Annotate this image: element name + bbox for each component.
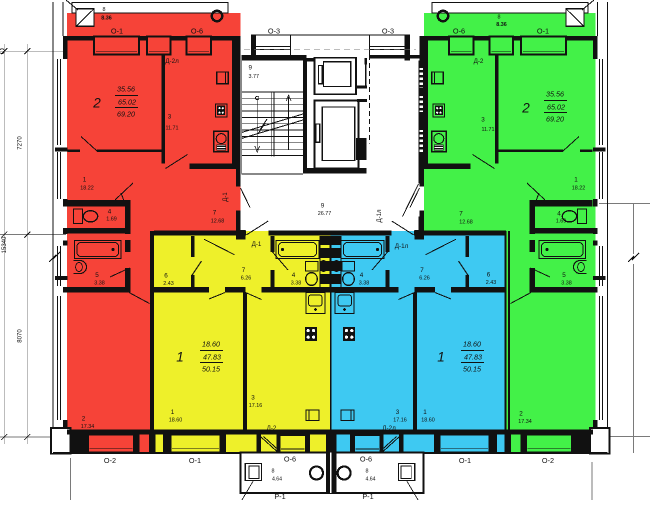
svg-text:3: 3 [481,117,485,124]
svg-text:6.26: 6.26 [241,276,252,282]
svg-text:4: 4 [108,209,112,216]
svg-text:11.71: 11.71 [481,127,494,133]
svg-text:О-6: О-6 [453,27,465,36]
svg-text:Д-1л: Д-1л [395,243,409,250]
svg-text:18.60: 18.60 [169,418,183,424]
svg-text:17.34: 17.34 [81,424,95,430]
svg-text:2.43: 2.43 [486,280,497,286]
svg-text:9: 9 [249,65,253,72]
svg-text:69.20: 69.20 [117,110,135,119]
svg-text:3.38: 3.38 [359,281,370,287]
svg-text:8: 8 [103,7,106,13]
svg-text:11.71: 11.71 [165,126,178,132]
svg-text:8070: 8070 [18,329,24,343]
svg-text:О-1: О-1 [459,456,471,465]
svg-text:4: 4 [557,211,561,218]
svg-text:9: 9 [321,203,325,210]
svg-text:18.60: 18.60 [421,418,435,424]
svg-text:12.68: 12.68 [211,219,225,225]
svg-text:1.69: 1.69 [556,219,567,225]
svg-text:7270: 7270 [18,136,24,150]
svg-text:О-2: О-2 [542,456,554,465]
svg-text:Д-1: Д-1 [252,241,262,248]
svg-text:15340: 15340 [2,236,8,253]
svg-text:8.36: 8.36 [496,22,507,28]
svg-text:О-2: О-2 [104,456,116,465]
svg-text:6.26: 6.26 [419,276,430,282]
svg-text:О-3: О-3 [382,27,394,36]
svg-text:О-6: О-6 [191,27,203,36]
svg-text:Д-2: Д-2 [474,58,484,65]
svg-text:Д-1: Д-1 [223,192,229,202]
svg-text:8: 8 [272,469,275,475]
svg-text:Д-1л: Д-1л [377,209,383,222]
svg-text:4.64: 4.64 [365,477,375,483]
svg-text:1: 1 [423,409,427,416]
svg-text:12.68: 12.68 [459,220,473,226]
svg-text:О-1: О-1 [111,27,123,36]
svg-text:8: 8 [498,15,501,21]
svg-text:О-1: О-1 [537,27,549,36]
svg-text:7: 7 [213,210,217,217]
svg-text:1: 1 [171,409,175,416]
svg-text:35.56: 35.56 [117,85,135,94]
svg-text:О-6: О-6 [284,454,296,463]
svg-text:1.69: 1.69 [106,217,117,223]
svg-text:50.15: 50.15 [202,365,221,374]
svg-text:3.38: 3.38 [561,281,572,287]
svg-text:1: 1 [176,350,184,365]
svg-text:О-1: О-1 [189,456,201,465]
svg-text:65.02: 65.02 [118,98,136,107]
svg-text:О-3: О-3 [268,27,280,36]
svg-text:6: 6 [487,272,491,279]
svg-text:3: 3 [251,395,255,402]
svg-text:65.02: 65.02 [547,103,565,112]
svg-text:18.60: 18.60 [202,340,220,349]
svg-text:2.43: 2.43 [163,281,174,287]
svg-text:17.16: 17.16 [393,418,407,424]
svg-text:26.77: 26.77 [318,211,332,217]
svg-text:47.83: 47.83 [203,353,221,362]
svg-text:17.16: 17.16 [249,403,263,409]
svg-text:4: 4 [360,272,364,279]
svg-text:18.60: 18.60 [463,340,481,349]
svg-text:7: 7 [459,211,463,218]
svg-text:2: 2 [92,96,101,111]
svg-text:Р-1: Р-1 [274,492,285,500]
svg-text:50.15: 50.15 [463,365,482,374]
svg-text:3: 3 [396,409,400,416]
svg-text:3: 3 [168,114,172,121]
svg-text:3.38: 3.38 [94,281,105,287]
svg-text:1: 1 [83,177,87,184]
svg-text:69.20: 69.20 [546,115,564,124]
svg-text:18.22: 18.22 [80,186,94,192]
svg-text:3.38: 3.38 [291,281,302,287]
svg-text:5: 5 [562,272,566,279]
svg-text:1: 1 [574,177,578,184]
svg-text:2: 2 [82,416,86,423]
svg-text:Р-1: Р-1 [362,492,373,500]
svg-text:2: 2 [519,411,523,418]
svg-text:7: 7 [420,267,424,274]
svg-text:8: 8 [366,469,369,475]
svg-text:Д-2л: Д-2л [382,425,396,432]
svg-text:3.77: 3.77 [249,74,260,80]
svg-text:Д-2: Д-2 [267,425,277,432]
svg-text:1: 1 [437,350,445,365]
svg-text:17.34: 17.34 [518,419,532,425]
svg-text:47.83: 47.83 [464,353,482,362]
svg-text:8.36: 8.36 [101,16,112,22]
svg-text:35.56: 35.56 [546,90,564,99]
svg-text:Д-2л: Д-2л [165,58,179,65]
svg-text:7: 7 [242,267,246,274]
svg-text:5: 5 [95,272,99,279]
svg-text:2: 2 [521,101,530,116]
svg-text:О-6: О-6 [360,454,372,463]
svg-text:4: 4 [292,272,296,279]
svg-text:18.22: 18.22 [572,186,586,192]
svg-text:4.64: 4.64 [272,477,282,483]
svg-text:6: 6 [164,273,168,280]
